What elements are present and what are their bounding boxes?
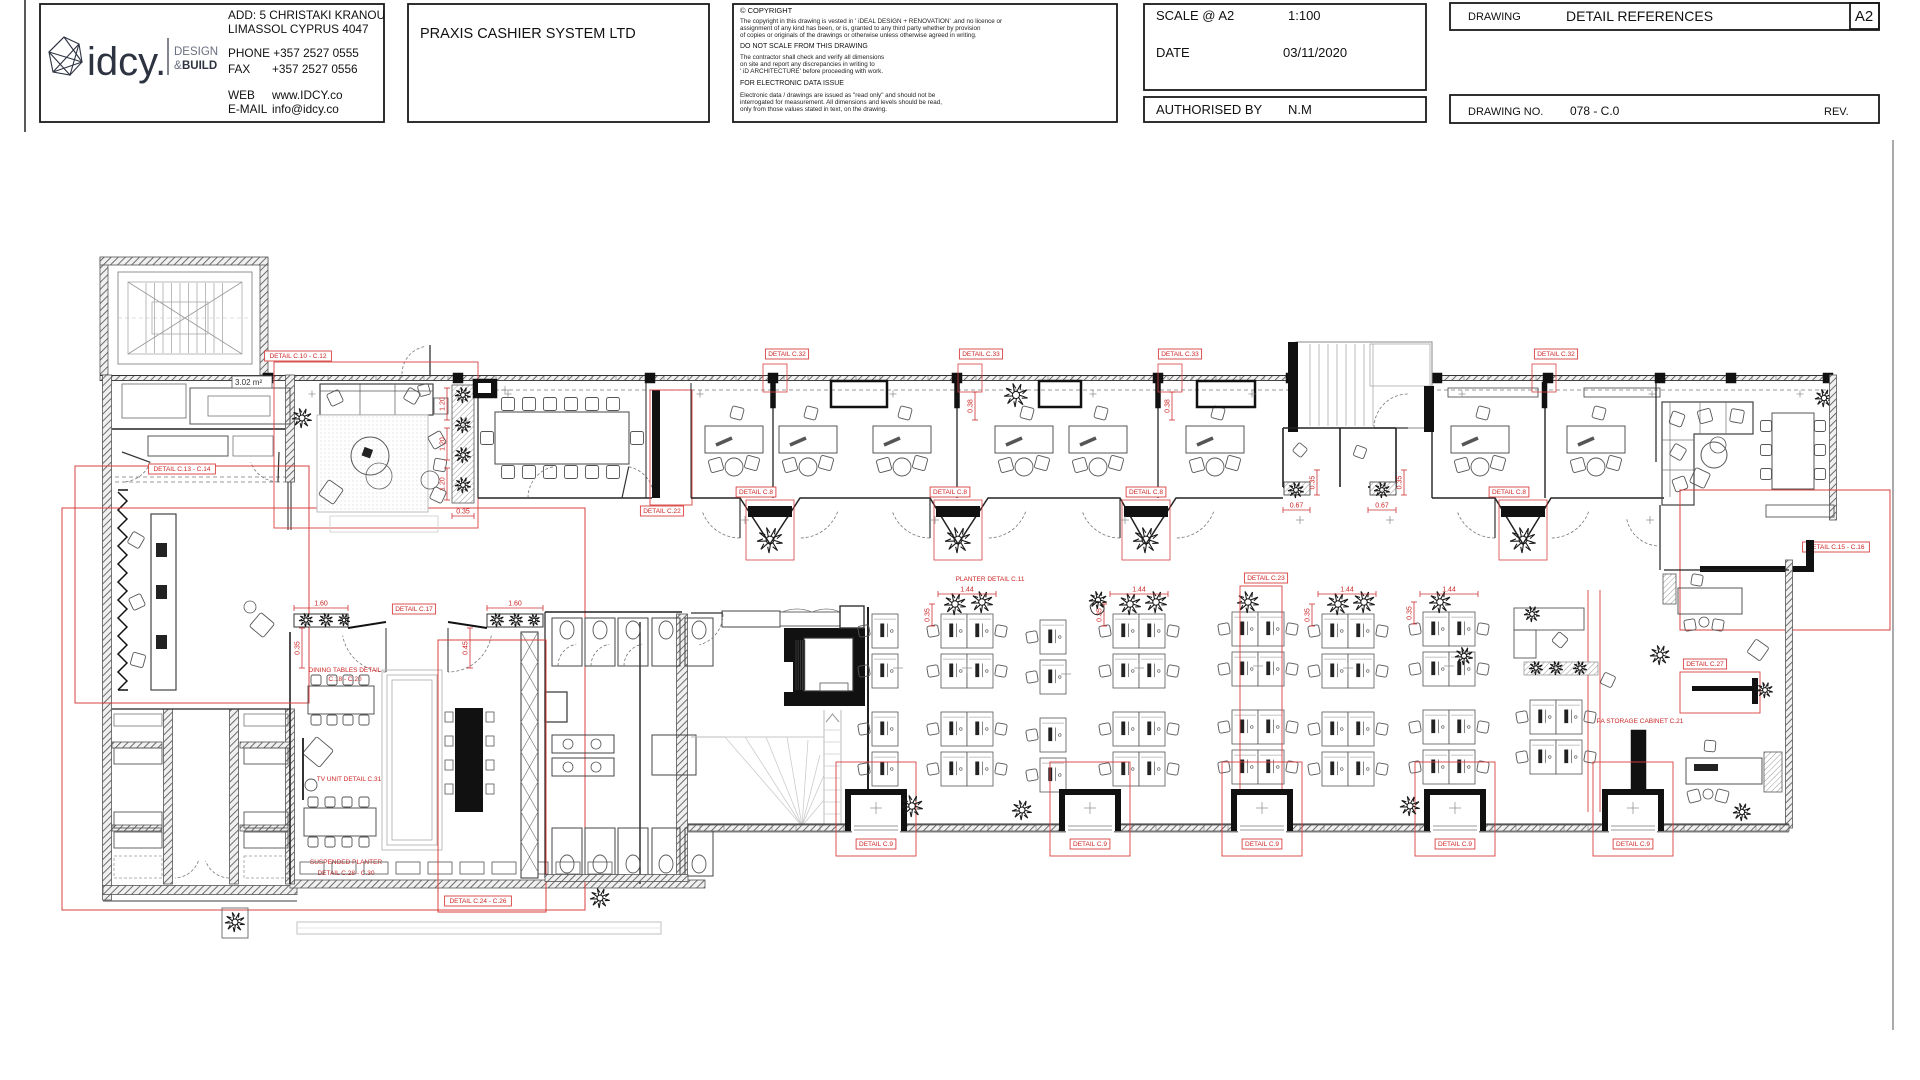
svg-text:LIMASSOL CYPRUS 4047: LIMASSOL CYPRUS 4047 [228,22,369,36]
svg-text:The copyright in this drawing: The copyright in this drawing is vested … [740,18,1002,25]
svg-text:DETAIL C.8: DETAIL C.8 [1129,489,1163,496]
svg-text:1.44: 1.44 [960,587,974,594]
svg-text:0.67: 0.67 [1375,503,1389,510]
svg-text:WEB: WEB [228,88,255,102]
svg-text:DRAWING: DRAWING [1468,11,1521,23]
svg-text:0.35: 0.35 [295,641,302,655]
svg-text:0.67: 0.67 [1290,503,1304,510]
svg-text:DESIGN: DESIGN [174,46,218,58]
svg-text:DRAWING NO.: DRAWING NO. [1468,106,1543,118]
svg-text:0.35: 0.35 [1397,476,1404,490]
svg-text:DETAIL C.9: DETAIL C.9 [1616,841,1650,848]
svg-text:DO NOT SCALE FROM THIS DRAWING: DO NOT SCALE FROM THIS DRAWING [740,43,868,50]
svg-text:PA STORAGE CABINET C.21: PA STORAGE CABINET C.21 [1597,718,1684,725]
svg-text:1:100: 1:100 [1288,8,1321,23]
svg-text:SUSPENDED PLANTER: SUSPENDED PLANTER [310,859,383,866]
svg-text:0.35: 0.35 [1407,606,1414,620]
svg-text:DETAIL C.28 - C.30: DETAIL C.28 - C.30 [317,870,374,877]
svg-text:DETAIL C.17: DETAIL C.17 [395,606,433,613]
svg-text:078 - C.0: 078 - C.0 [1570,104,1620,118]
svg-text:on site and report any discrep: on site and report any discrepancies in … [740,61,875,68]
svg-text:DINING TABLES DETAIL: DINING TABLES DETAIL [309,667,382,674]
svg-text:DETAIL C.15 - C.16: DETAIL C.15 - C.16 [1807,544,1864,551]
svg-text:DETAIL C.8: DETAIL C.8 [933,489,967,496]
svg-text:Electronic data / drawings are: Electronic data / drawings are issued as… [740,92,936,99]
svg-text:interrogated for measurement.: interrogated for measurement. All dimens… [740,99,942,106]
svg-text:' iD ARCHITECTURE' before proc: ' iD ARCHITECTURE' before proceeding wit… [740,68,883,75]
svg-text:1.20: 1.20 [440,437,447,451]
svg-text:FOR ELECTRONIC DATA ISSUE: FOR ELECTRONIC DATA ISSUE [740,80,844,87]
svg-text:1.60: 1.60 [314,601,328,608]
svg-text:TV UNIT DETAIL C.31: TV UNIT DETAIL C.31 [317,776,382,783]
svg-text:N.M: N.M [1288,102,1312,117]
svg-text:DETAIL C.10 - C.12: DETAIL C.10 - C.12 [269,353,326,360]
svg-text:0.35: 0.35 [1310,476,1317,490]
svg-text:1.44: 1.44 [1340,587,1354,594]
svg-text:only from those values stated: only from those values stated in text, o… [740,106,887,113]
svg-text:DETAIL C.9: DETAIL C.9 [1073,841,1107,848]
svg-text:03/11/2020: 03/11/2020 [1283,45,1347,60]
svg-text:DETAIL C.27: DETAIL C.27 [1686,661,1724,668]
svg-text:DETAIL C.32: DETAIL C.32 [1537,351,1575,358]
svg-text:0.38: 0.38 [968,399,975,413]
svg-text:DETAIL C.24 - C.26: DETAIL C.24 - C.26 [449,898,506,905]
svg-text:DATE: DATE [1156,45,1190,60]
svg-text:idcy.: idcy. [87,40,166,84]
svg-text:0.38: 0.38 [1165,399,1172,413]
svg-text:assignment of any kind has bee: assignment of any kind has been, or is, … [740,25,981,32]
svg-text:The contractor shall check and: The contractor shall check and verify al… [740,54,884,61]
svg-text:1.20: 1.20 [440,397,447,411]
svg-text:DETAIL C.9: DETAIL C.9 [859,841,893,848]
svg-text:C.18 - C.20: C.18 - C.20 [328,676,362,683]
svg-text:A2: A2 [1855,8,1873,25]
svg-text:DETAIL REFERENCES: DETAIL REFERENCES [1566,8,1713,24]
svg-text:E-MAIL: E-MAIL [228,102,268,116]
svg-text:www.IDCY.co: www.IDCY.co [271,88,343,102]
svg-text:0.45: 0.45 [463,641,470,655]
svg-text:DETAIL C.33: DETAIL C.33 [1161,351,1199,358]
svg-text:PLANTER DETAIL C.11: PLANTER DETAIL C.11 [956,576,1025,583]
svg-text:DETAIL C.13 - C.14: DETAIL C.13 - C.14 [153,466,210,473]
svg-text:ADD: 5 CHRISTAKI KRANOU: ADD: 5 CHRISTAKI KRANOU [228,8,385,22]
svg-text:PRAXIS CASHIER SYSTEM LTD: PRAXIS CASHIER SYSTEM LTD [420,26,636,42]
svg-text:DETAIL C.33: DETAIL C.33 [962,351,1000,358]
svg-text:1.20: 1.20 [440,477,447,491]
svg-text:&: & [174,60,182,72]
svg-text:of copies or originals of the: of copies or originals of the drawings o… [740,32,977,39]
svg-text:PHONE +357 2527 0555: PHONE +357 2527 0555 [228,46,359,60]
svg-text:0.35: 0.35 [1305,608,1312,622]
svg-text:SCALE @ A2: SCALE @ A2 [1156,8,1234,23]
svg-text:DETAIL C.22: DETAIL C.22 [643,508,681,515]
svg-text:© COPYRIGHT: © COPYRIGHT [740,6,793,15]
svg-text:0.35: 0.35 [925,608,932,622]
svg-text:DETAIL C.32: DETAIL C.32 [768,351,806,358]
svg-text:BUILD: BUILD [182,60,217,72]
svg-text:AUTHORISED BY: AUTHORISED BY [1156,102,1263,117]
svg-text:1.44: 1.44 [1132,587,1146,594]
svg-text:1.60: 1.60 [508,601,522,608]
svg-text:0.35: 0.35 [456,509,470,516]
svg-text:DETAIL C.23: DETAIL C.23 [1247,575,1285,582]
svg-text:3.02 m²: 3.02 m² [235,378,262,387]
svg-text:FAX: FAX [228,62,250,76]
svg-text:DETAIL C.8: DETAIL C.8 [739,489,773,496]
svg-text:info@idcy.co: info@idcy.co [272,102,339,116]
svg-text:DETAIL C.8: DETAIL C.8 [1492,489,1526,496]
svg-text:1.44: 1.44 [1442,587,1456,594]
svg-text:REV.: REV. [1824,106,1849,118]
svg-text:+357 2527 0556: +357 2527 0556 [272,62,358,76]
svg-text:DETAIL C.9: DETAIL C.9 [1438,841,1472,848]
svg-text:DETAIL C.9: DETAIL C.9 [1245,841,1279,848]
